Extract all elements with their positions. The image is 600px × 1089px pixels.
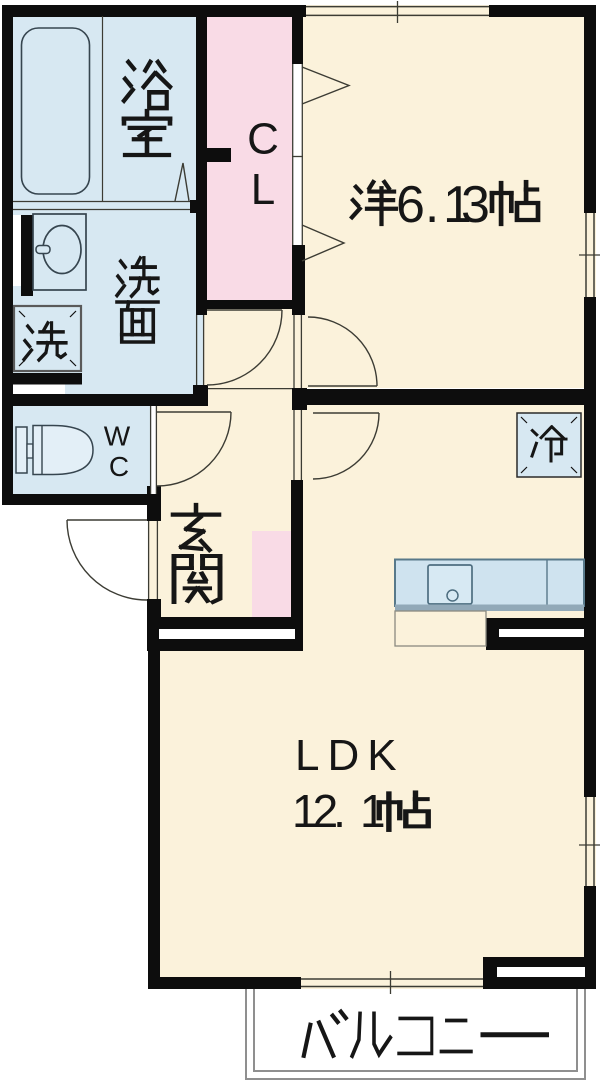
svg-text:6.: 6. xyxy=(396,176,439,234)
svg-text:LDK: LDK xyxy=(295,731,405,780)
svg-text:C: C xyxy=(109,451,129,482)
svg-text:12.: 12. xyxy=(292,785,342,837)
svg-text:L: L xyxy=(251,165,275,214)
svg-text:W: W xyxy=(104,421,131,452)
svg-text:3: 3 xyxy=(461,176,490,234)
svg-text:C: C xyxy=(247,115,279,164)
